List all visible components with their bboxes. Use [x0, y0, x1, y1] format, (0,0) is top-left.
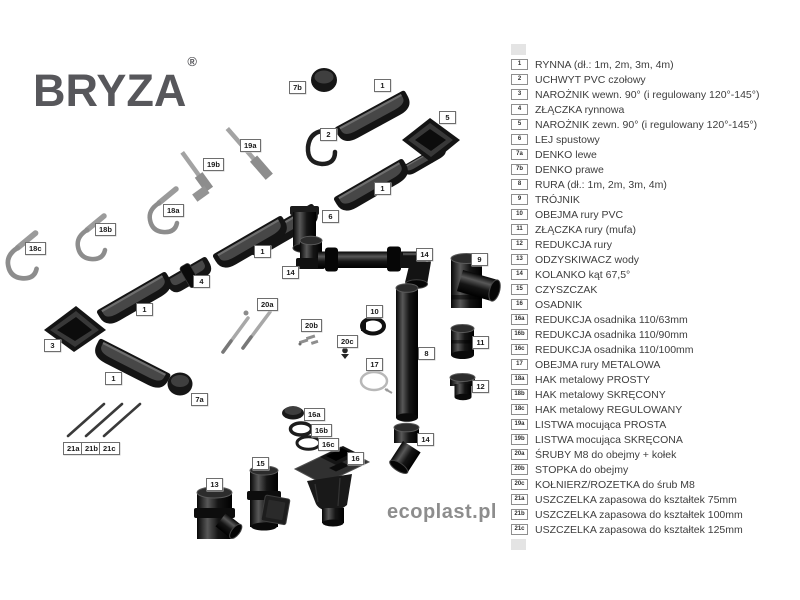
part-label-18a: 18a [163, 204, 184, 217]
legend-item-number: 16b [511, 329, 528, 340]
legend-item-21c: 21cUSZCZELKA zapasowa do kształtek 125mm [511, 522, 759, 537]
part-label-16a: 16a [304, 408, 325, 421]
legend: 1RYNNA (dł.: 1m, 2m, 3m, 4m)2UCHWYT PVC … [511, 44, 759, 550]
part-16b-redukcja-osadnika [291, 423, 312, 435]
part-label-1: 1 [374, 79, 391, 92]
legend-item-18c: 18cHAK metalowy REGULOWANY [511, 402, 759, 417]
legend-item-label: OSADNIK [535, 299, 582, 311]
legend-item-label: OBEJMA rury PVC [535, 209, 623, 221]
legend-item-12: 12REDUKCJA rury [511, 237, 759, 252]
legend-item-label: RYNNA (dł.: 1m, 2m, 3m, 4m) [535, 59, 674, 71]
part-label-16c: 16c [318, 438, 339, 451]
legend-item-19a: 19aLISTWA mocująca PROSTA [511, 417, 759, 432]
part-label-16: 16 [347, 452, 364, 465]
legend-item-number: 3 [511, 89, 528, 100]
legend-item-number: 6 [511, 134, 528, 145]
legend-item-number: 8 [511, 179, 528, 190]
legend-item-number: 20b [511, 464, 528, 475]
part-label-1: 1 [254, 245, 271, 258]
legend-item-label: NAROŻNIK wewn. 90° (i regulowany 120°-14… [535, 89, 759, 101]
part-label-14: 14 [282, 266, 299, 279]
legend-item-20b: 20bSTOPKA do obejmy [511, 462, 759, 477]
legend-item-19b: 19bLISTWA mocująca SKRĘCONA [511, 432, 759, 447]
legend-item-number: 18a [511, 374, 528, 385]
legend-item-label: HAK metalowy SKRĘCONY [535, 389, 666, 401]
part-label-12: 12 [472, 380, 489, 393]
part-16c-redukcja-osadnika [297, 437, 320, 449]
legend-item-number: 9 [511, 194, 528, 205]
part-20c-kolnierz-rozetka [341, 348, 349, 359]
legend-item-7a: 7aDENKO lewe [511, 147, 759, 162]
part-1-rynna-top [334, 90, 414, 146]
legend-item-number: 16a [511, 314, 528, 325]
legend-item-label: KOŁNIERZ/ROZETKA do śrub M8 [535, 479, 695, 491]
legend-item-number: 2 [511, 74, 528, 85]
part-16a-redukcja-osadnika [282, 406, 304, 420]
part-7a-denko-lewe [168, 373, 193, 396]
legend-item-label: REDUKCJA osadnika 110/63mm [535, 314, 688, 326]
legend-item-label: LISTWA mocująca SKRĘCONA [535, 434, 683, 446]
part-1-rynna-d [96, 271, 175, 328]
part-10-obejma-pvc [361, 319, 384, 334]
part-label-19b: 19b [203, 158, 224, 171]
part-17-obejma-metalowa [361, 372, 392, 393]
legend-item-number: 15 [511, 284, 528, 295]
part-label-5: 5 [439, 111, 456, 124]
part-19a-listwa-prosta [224, 125, 273, 180]
legend-spacer-bottom [511, 539, 526, 550]
legend-item-number: 12 [511, 239, 528, 250]
legend-item-2: 2UCHWYT PVC czołowy [511, 72, 759, 87]
legend-item-label: ŚRUBY M8 do obejmy + kołek [535, 449, 676, 461]
legend-item-number: 13 [511, 254, 528, 265]
part-1-rynna-b [333, 158, 412, 215]
legend-item-18a: 18aHAK metalowy PROSTY [511, 372, 759, 387]
legend-item-8: 8RURA (dł.: 1m, 2m, 3m, 4m) [511, 177, 759, 192]
legend-item-5: 5NAROŻNIK zewn. 90° (i regulowany 120°-1… [511, 117, 759, 132]
legend-item-label: REDUKCJA osadnika 110/90mm [535, 329, 688, 341]
legend-item-label: REDUKCJA rury [535, 239, 612, 251]
legend-item-label: RURA (dł.: 1m, 2m, 3m, 4m) [535, 179, 667, 191]
part-20b-stopka [299, 335, 319, 346]
part-18c-hak-regulowany [8, 233, 37, 278]
part-13-odzyskiwacz [194, 487, 244, 541]
legend-item-20a: 20aŚRUBY M8 do obejmy + kołek [511, 447, 759, 462]
legend-item-16c: 16cREDUKCJA osadnika 110/100mm [511, 342, 759, 357]
part-7b-denko-prawe [311, 68, 337, 92]
legend-item-3: 3NAROŻNIK wewn. 90° (i regulowany 120°-1… [511, 87, 759, 102]
part-label-20b: 20b [301, 319, 322, 332]
legend-item-16a: 16aREDUKCJA osadnika 110/63mm [511, 312, 759, 327]
legend-item-label: ZŁĄCZKA rynnowa [535, 104, 624, 116]
part-14-kolanko-bottom [388, 423, 421, 476]
part-label-9: 9 [471, 253, 488, 266]
legend-item-label: OBEJMA rury METALOWA [535, 359, 660, 371]
legend-item-number: 5 [511, 119, 528, 130]
part-15-czyszczak [247, 466, 290, 531]
part-label-17: 17 [366, 358, 383, 371]
legend-item-number: 17 [511, 359, 528, 370]
part-5-naroznik-zewn [401, 118, 460, 177]
legend-item-number: 11 [511, 224, 528, 235]
website-text: ecoplast.pl [387, 501, 497, 524]
legend-item-label: TRÓJNIK [535, 194, 580, 206]
part-label-2: 2 [320, 128, 337, 141]
part-label-7a: 7a [191, 393, 208, 406]
legend-item-21a: 21aUSZCZELKA zapasowa do kształtek 75mm [511, 492, 759, 507]
legend-item-number: 7a [511, 149, 528, 160]
legend-item-number: 18b [511, 389, 528, 400]
legend-item-number: 16c [511, 344, 528, 355]
legend-item-label: ZŁĄCZKA rury (mufa) [535, 224, 636, 236]
legend-item-number: 20a [511, 449, 528, 460]
legend-item-label: USZCZELKA zapasowa do kształtek 75mm [535, 494, 737, 506]
part-label-21c: 21c [99, 442, 120, 455]
legend-item-label: LISTWA mocująca PROSTA [535, 419, 666, 431]
legend-item-6: 6LEJ spustowy [511, 132, 759, 147]
legend-item-4: 4ZŁĄCZKA rynnowa [511, 102, 759, 117]
part-label-1: 1 [136, 303, 153, 316]
part-11-zlaczka-mufa [451, 325, 474, 360]
part-label-18b: 18b [95, 223, 116, 236]
legend-item-9: 9TRÓJNIK [511, 192, 759, 207]
part-label-19a: 19a [240, 139, 261, 152]
part-20a-sruby-m8 [223, 311, 270, 353]
legend-item-18b: 18bHAK metalowy SKRĘCONY [511, 387, 759, 402]
legend-item-label: HAK metalowy PROSTY [535, 374, 650, 386]
part-label-1: 1 [374, 182, 391, 195]
legend-item-number: 21b [511, 509, 528, 520]
legend-item-number: 7b [511, 164, 528, 175]
legend-item-number: 10 [511, 209, 528, 220]
part-label-11: 11 [472, 336, 489, 349]
legend-item-number: 21a [511, 494, 528, 505]
legend-item-17: 17OBEJMA rury METALOWA [511, 357, 759, 372]
legend-item-label: UCHWYT PVC czołowy [535, 74, 646, 86]
legend-item-label: DENKO lewe [535, 149, 597, 161]
part-label-14: 14 [417, 433, 434, 446]
part-21-uszczelki [68, 404, 140, 436]
legend-item-number: 20c [511, 479, 528, 490]
part-label-14: 14 [416, 248, 433, 261]
legend-item-11: 11ZŁĄCZKA rury (mufa) [511, 222, 759, 237]
part-label-1: 1 [105, 372, 122, 385]
legend-item-label: USZCZELKA zapasowa do kształtek 125mm [535, 524, 743, 536]
part-label-18c: 18c [25, 242, 46, 255]
legend-item-20c: 20cKOŁNIERZ/ROZETKA do śrub M8 [511, 477, 759, 492]
legend-item-label: REDUKCJA osadnika 110/100mm [535, 344, 694, 356]
legend-item-number: 1 [511, 59, 528, 70]
legend-item-7b: 7bDENKO prawe [511, 162, 759, 177]
legend-item-10: 10OBEJMA rury PVC [511, 207, 759, 222]
legend-item-label: HAK metalowy REGULOWANY [535, 404, 682, 416]
legend-item-label: CZYSZCZAK [535, 284, 597, 296]
part-label-10: 10 [366, 305, 383, 318]
part-label-16b: 16b [311, 424, 332, 437]
legend-item-number: 4 [511, 104, 528, 115]
legend-item-15: 15CZYSZCZAK [511, 282, 759, 297]
legend-item-1: 1RYNNA (dł.: 1m, 2m, 3m, 4m) [511, 57, 759, 72]
legend-item-16b: 16bREDUKCJA osadnika 110/90mm [511, 327, 759, 342]
legend-item-number: 14 [511, 269, 528, 280]
part-1-rynna-e [91, 338, 171, 392]
legend-item-label: ODZYSKIWACZ wody [535, 254, 639, 266]
part-label-4: 4 [193, 275, 210, 288]
part-label-20c: 20c [337, 335, 358, 348]
legend-item-label: KOLANKO kąt 67,5° [535, 269, 630, 281]
legend-item-number: 18c [511, 404, 528, 415]
part-label-20a: 20a [257, 298, 278, 311]
part-label-7b: 7b [289, 81, 306, 94]
legend-item-16: 16OSADNIK [511, 297, 759, 312]
part-8-rura [396, 284, 418, 422]
catalog-page: BRYZA® [0, 0, 800, 600]
legend-item-14: 14KOLANKO kąt 67,5° [511, 267, 759, 282]
legend-item-label: LEJ spustowy [535, 134, 600, 146]
legend-item-label: DENKO prawe [535, 164, 604, 176]
part-label-13: 13 [206, 478, 223, 491]
legend-rows: 1RYNNA (dł.: 1m, 2m, 3m, 4m)2UCHWYT PVC … [511, 57, 759, 537]
legend-item-number: 16 [511, 299, 528, 310]
legend-item-21b: 21bUSZCZELKA zapasowa do kształtek 100mm [511, 507, 759, 522]
legend-item-label: NAROŻNIK zewn. 90° (i regulowany 120°-14… [535, 119, 757, 131]
part-label-6: 6 [322, 210, 339, 223]
legend-item-number: 19a [511, 419, 528, 430]
legend-item-number: 21c [511, 524, 528, 535]
part-label-15: 15 [252, 457, 269, 470]
part-pipe-horizontal [318, 247, 406, 272]
legend-spacer-top [511, 44, 526, 55]
part-label-3: 3 [44, 339, 61, 352]
part-label-8: 8 [418, 347, 435, 360]
legend-item-number: 19b [511, 434, 528, 445]
legend-item-label: USZCZELKA zapasowa do kształtek 100mm [535, 509, 743, 521]
legend-item-13: 13ODZYSKIWACZ wody [511, 252, 759, 267]
legend-item-label: STOPKA do obejmy [535, 464, 628, 476]
